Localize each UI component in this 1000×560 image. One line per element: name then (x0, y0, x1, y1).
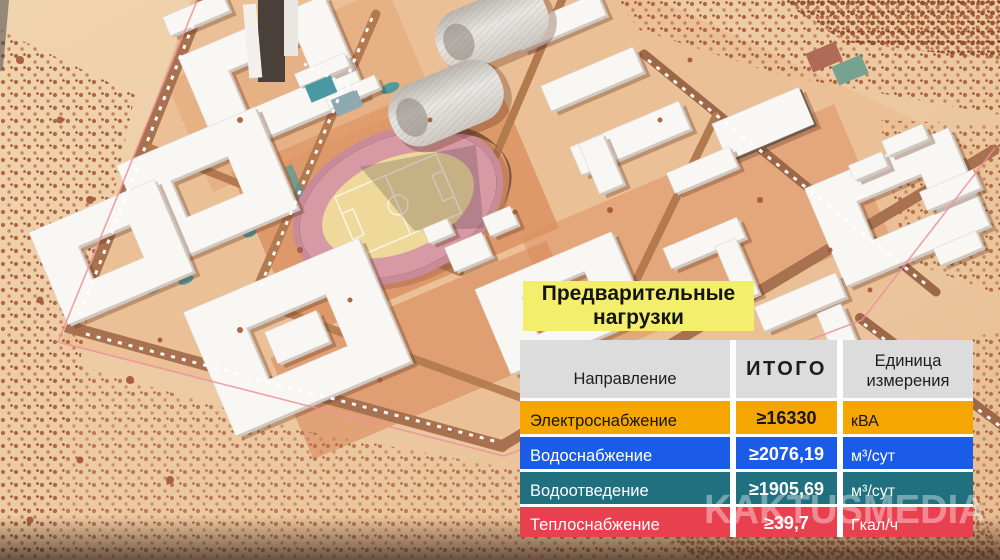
col-header-unit: Единица измерения (843, 340, 973, 398)
row-1-unit: кВА (843, 401, 973, 434)
row-4-direction: Теплоснабжение (520, 507, 730, 537)
row-2-unit: м³/сут (843, 437, 973, 469)
kaktusmedia-watermark: KAKTUSMEDIA (704, 488, 986, 530)
col-header-direction: Направление (520, 340, 730, 398)
row-2-total: ≥2076,19 (736, 437, 837, 469)
infographic-root: Предварительные нагрузки Направление ИТО… (0, 0, 1000, 560)
row-1-direction: Электроснабжение (520, 401, 730, 434)
row-1-total: ≥16330 (736, 401, 837, 434)
row-2-direction: Водоснабжение (520, 437, 730, 469)
infographic-title: Предварительные нагрузки (523, 281, 754, 331)
row-3-direction: Водоотведение (520, 472, 730, 504)
col-header-total: ИТОГО (736, 340, 837, 398)
